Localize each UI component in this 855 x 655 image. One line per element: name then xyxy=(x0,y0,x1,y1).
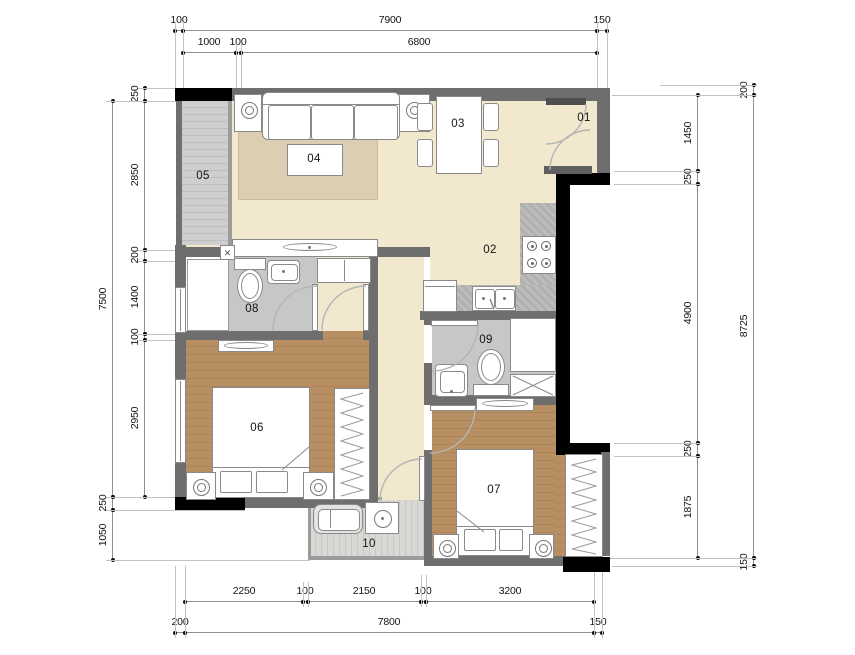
dim-line xyxy=(183,30,597,31)
room-label-10: 10 xyxy=(362,538,375,550)
room-label-07: 07 xyxy=(487,484,500,496)
dim-text: 2150 xyxy=(353,585,376,597)
wall-black-vertical xyxy=(556,173,570,455)
dim-line xyxy=(697,184,698,443)
sofa xyxy=(262,92,400,140)
dim-text: 100 xyxy=(297,585,314,597)
ext-line xyxy=(175,22,176,88)
balcony10-edge-bottom xyxy=(308,556,426,560)
dim-text: 150 xyxy=(738,554,750,571)
door-leaf-bedroom06 xyxy=(363,284,369,331)
stove xyxy=(522,236,556,274)
ext-line xyxy=(106,510,245,511)
washing-machine xyxy=(365,502,399,534)
bed06-pillow xyxy=(220,471,252,493)
entry-door-leaf-top xyxy=(546,98,586,105)
room-label-05: 05 xyxy=(196,170,209,182)
ext-line xyxy=(175,566,176,638)
dim-line xyxy=(753,558,754,566)
dim-text: 7800 xyxy=(378,616,401,628)
room-label-02: 02 xyxy=(483,244,496,256)
dim-text: 1875 xyxy=(682,496,694,519)
wardrobe-bedroom07 xyxy=(565,454,603,557)
entry-door-leaf-bottom xyxy=(544,166,592,174)
wardrobe-bedroom06 xyxy=(334,388,370,500)
lamp-07-right xyxy=(535,540,552,557)
dim-text: 7900 xyxy=(379,14,402,26)
ext-line xyxy=(421,575,422,607)
tv-center-dot xyxy=(308,246,311,249)
dining-chair xyxy=(483,103,499,131)
dim-text: 1050 xyxy=(97,524,109,547)
ext-line xyxy=(236,44,237,88)
dim-line xyxy=(753,95,754,558)
floor-entry xyxy=(545,101,599,175)
shaft-void xyxy=(570,185,608,443)
room-label-01: 01 xyxy=(577,112,590,124)
floor-plan: ✕ xyxy=(0,0,855,655)
kitchen-sink xyxy=(472,286,516,311)
bed07-pillow xyxy=(499,529,523,551)
shaft-box: ✕ xyxy=(220,245,235,260)
door-leaf-balcony10 xyxy=(419,456,425,501)
ext-line xyxy=(602,572,603,638)
floor-corridor xyxy=(378,247,424,500)
bed06-pillow xyxy=(256,471,288,493)
dim-line xyxy=(241,52,597,53)
dim-text: 1400 xyxy=(129,286,141,309)
sink09 xyxy=(435,364,468,397)
dining-chair xyxy=(483,139,499,167)
dim-text: 3200 xyxy=(499,585,522,597)
wall-balcony05-left xyxy=(176,101,182,245)
wall-black-bottom-right xyxy=(563,557,610,572)
dim-line xyxy=(185,632,594,633)
ext-line xyxy=(183,22,184,88)
ext-line xyxy=(607,22,608,95)
dim-text: 8725 xyxy=(738,315,750,338)
door-leaf-bath09 xyxy=(431,320,478,326)
dim-line xyxy=(697,95,698,171)
dim-text: 2250 xyxy=(233,585,256,597)
ext-line xyxy=(106,497,180,498)
dim-line xyxy=(426,601,594,602)
dining-chair xyxy=(417,139,433,167)
laundry-tub xyxy=(313,504,363,534)
dim-text: 4900 xyxy=(682,302,694,325)
dim-line xyxy=(185,601,303,602)
ext-line xyxy=(594,566,595,638)
toilet09-tank xyxy=(473,384,509,396)
closet-west xyxy=(187,259,229,331)
ext-line xyxy=(614,171,701,172)
dim-line xyxy=(144,261,145,334)
dim-line xyxy=(697,456,698,558)
dim-line xyxy=(144,101,145,250)
dim-text: 100 xyxy=(171,14,188,26)
ext-line xyxy=(612,95,757,96)
room-label-08: 08 xyxy=(245,303,258,315)
ext-line xyxy=(241,44,242,88)
window-closet xyxy=(175,287,186,333)
lamp-sofa-left xyxy=(241,102,258,119)
dim-line xyxy=(112,510,113,560)
ext-line xyxy=(138,88,176,89)
dim-line xyxy=(183,52,236,53)
lamp-06-right xyxy=(310,479,327,496)
dim-line xyxy=(597,30,607,31)
dim-text: 100 xyxy=(230,36,247,48)
tv-bedroom06 xyxy=(224,342,268,349)
dim-text: 100 xyxy=(129,329,141,346)
ext-line xyxy=(660,85,757,86)
dim-line xyxy=(594,632,602,633)
door-leaf-bedroom07 xyxy=(430,405,476,411)
ext-line xyxy=(612,566,757,567)
tv-bedroom07 xyxy=(482,400,528,407)
ext-line xyxy=(426,575,427,607)
dim-text: 7500 xyxy=(97,288,109,311)
dim-text: 2850 xyxy=(129,164,141,187)
ext-line xyxy=(106,101,176,102)
fridge xyxy=(423,280,457,312)
ext-line xyxy=(185,566,186,638)
wall-bath08-south-a xyxy=(186,331,323,340)
room-label-03: 03 xyxy=(451,118,464,130)
sink08 xyxy=(267,260,300,284)
dim-text: 1000 xyxy=(198,36,221,48)
bed07-pillow xyxy=(464,529,496,551)
wall-bedroom06-east xyxy=(369,257,378,497)
dining-table xyxy=(436,96,482,174)
closet-two-cell xyxy=(317,258,371,283)
lamp-06-left xyxy=(193,479,210,496)
wall-right-entry xyxy=(597,101,610,175)
window-balcony05-divider xyxy=(228,101,232,247)
room-label-06: 06 xyxy=(250,422,263,434)
toilet09-bowl xyxy=(477,349,505,385)
door-leaf-bath08 xyxy=(312,284,318,331)
ext-line xyxy=(614,443,701,444)
dim-text: 150 xyxy=(590,616,607,628)
dining-chair xyxy=(417,103,433,131)
dim-text: 6800 xyxy=(408,36,431,48)
dim-line xyxy=(144,340,145,497)
bath09-tub xyxy=(510,318,556,372)
dim-line xyxy=(308,601,421,602)
wall-bedroom07-west xyxy=(424,450,432,500)
ext-line xyxy=(106,560,310,561)
ext-line xyxy=(614,184,701,185)
dim-text: 100 xyxy=(415,585,432,597)
bath09-shower-tray xyxy=(510,374,556,397)
room-label-04: 04 xyxy=(307,153,320,165)
window-bedroom06 xyxy=(175,379,186,463)
lamp-07-left xyxy=(439,540,456,557)
dim-text: 1450 xyxy=(682,122,694,145)
wall-black-top-left xyxy=(175,88,232,101)
toilet08-bowl xyxy=(237,269,263,303)
ext-line xyxy=(303,582,304,607)
room-label-09: 09 xyxy=(479,334,492,346)
dim-text: 2950 xyxy=(129,407,141,430)
ext-line xyxy=(308,582,309,607)
dim-line xyxy=(112,101,113,497)
ext-line xyxy=(597,22,598,88)
ext-line xyxy=(614,456,701,457)
